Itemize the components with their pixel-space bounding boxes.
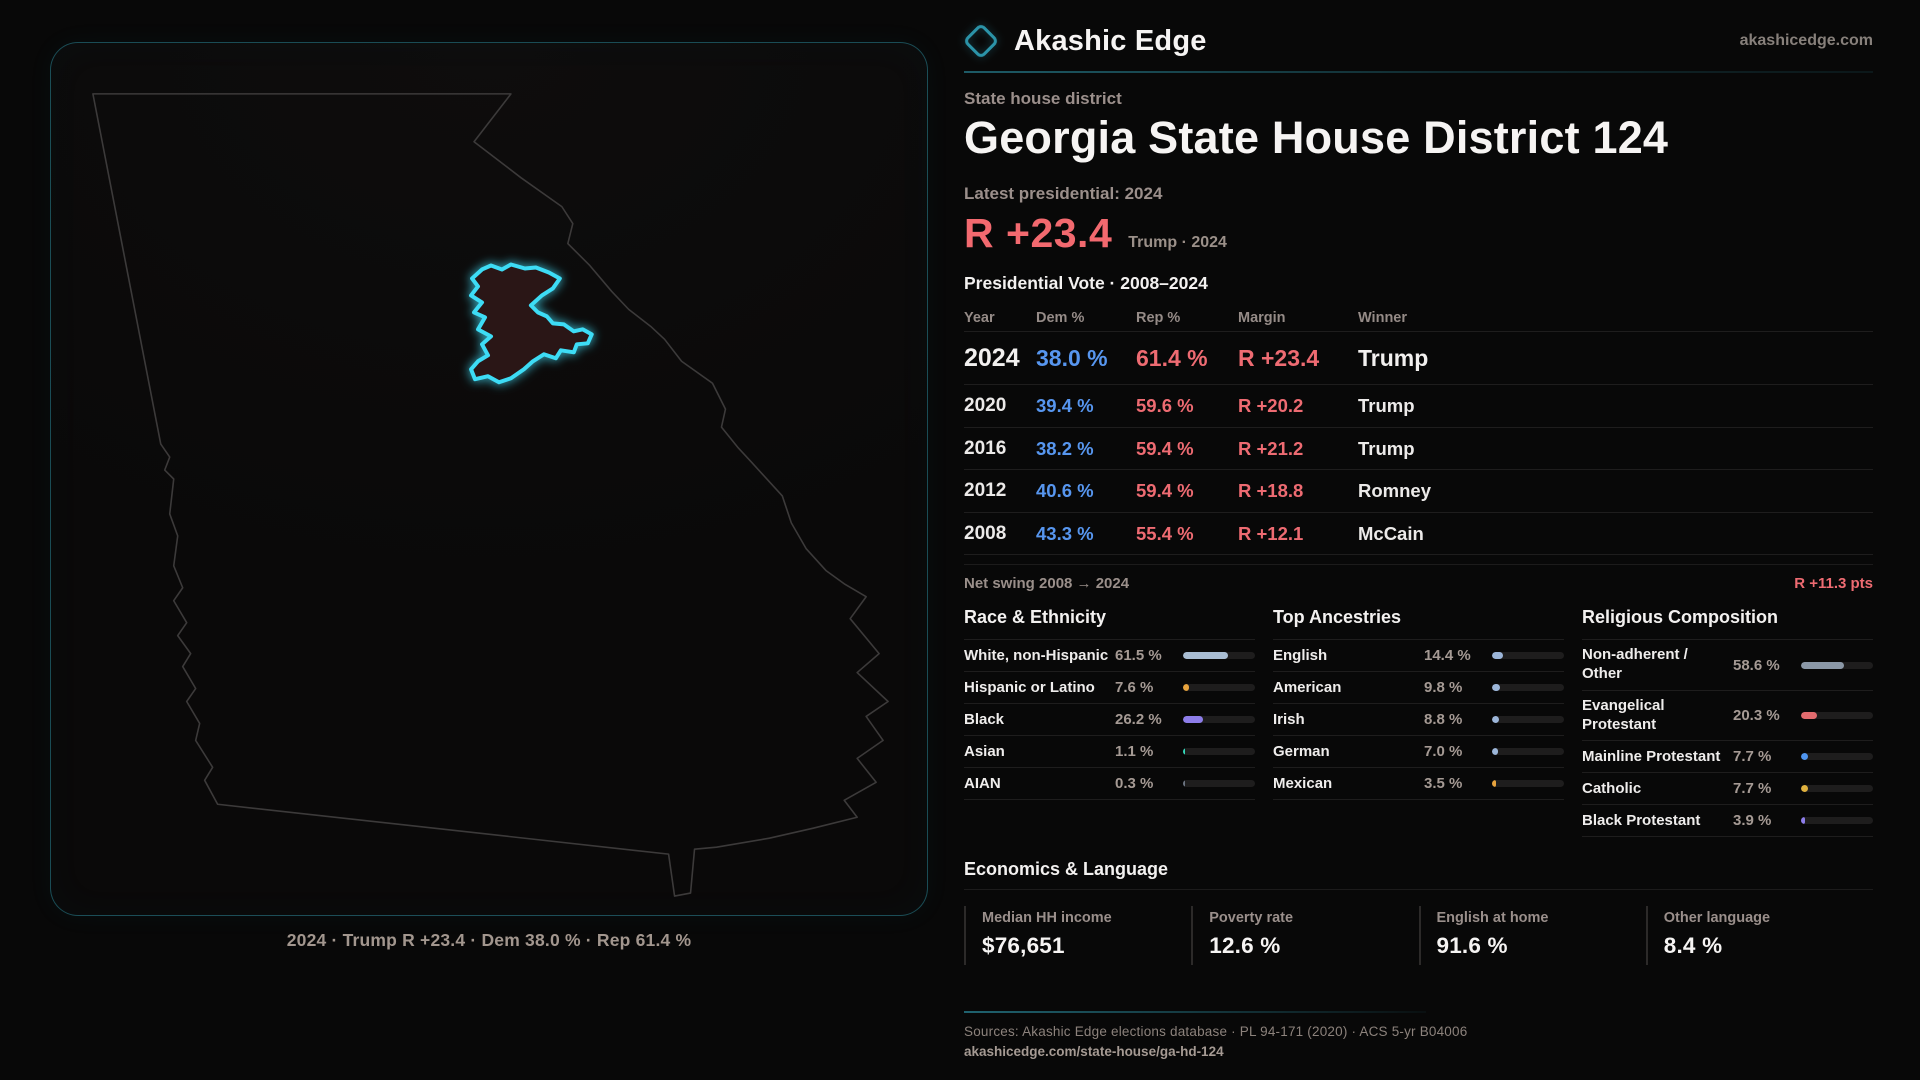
demo-bar: [1801, 662, 1873, 669]
demo-label: White, non-Hispanic: [964, 647, 1109, 666]
permalink[interactable]: akashicedge.com/state-house/ga-hd-124: [964, 1044, 1873, 1059]
demo-bar: [1183, 748, 1255, 755]
demo-label: Hispanic or Latino: [964, 679, 1109, 698]
georgia-map: [51, 43, 927, 915]
vote-rep-pct: 59.4 %: [1136, 480, 1238, 502]
demo-bar: [1801, 817, 1873, 824]
demo-label: AIAN: [964, 775, 1109, 794]
vote-dem-pct: 38.2 %: [1036, 438, 1136, 460]
demo-value: 58.6 %: [1733, 657, 1795, 674]
stat-label: English at home: [1437, 910, 1646, 926]
vote-dem-pct: 39.4 %: [1036, 395, 1136, 417]
vote-table-row: 202039.4 %59.6 %R +20.2Trump: [964, 385, 1873, 428]
stat-label: Median HH income: [982, 910, 1191, 926]
vote-margin: R +20.2: [1238, 395, 1358, 417]
demo-label: German: [1273, 743, 1418, 762]
demo-value: 1.1 %: [1115, 743, 1177, 760]
demo-rows: English14.4 %American9.8 %Irish8.8 %Germ…: [1273, 639, 1564, 800]
demo-row: Non-adherent / Other58.6 %: [1582, 640, 1873, 691]
demo-bar-fill: [1492, 780, 1496, 787]
stat-label: Poverty rate: [1209, 910, 1418, 926]
vote-table-header: Year Dem % Rep % Margin Winner: [964, 304, 1873, 332]
vote-table-row: 201638.2 %59.4 %R +21.2Trump: [964, 428, 1873, 471]
headline-margin-value: R +23.4: [964, 210, 1112, 257]
vote-rep-pct: 61.4 %: [1136, 345, 1238, 372]
vote-winner: Trump: [1358, 345, 1873, 372]
demo-row: Irish8.8 %: [1273, 704, 1564, 736]
demo-column-title: Top Ancestries: [1273, 607, 1564, 628]
stat-value: 12.6 %: [1209, 933, 1418, 959]
georgia-state-outline: [93, 94, 888, 896]
demo-rows: White, non-Hispanic61.5 %Hispanic or Lat…: [964, 639, 1255, 800]
sources-text: Sources: Akashic Edge elections database…: [964, 1024, 1873, 1039]
demo-bar-fill: [1183, 716, 1203, 723]
demo-bar: [1492, 716, 1564, 723]
vote-dem-pct: 40.6 %: [1036, 480, 1136, 502]
footer-divider: [964, 1011, 1426, 1013]
economics-title: Economics & Language: [964, 859, 1873, 880]
demo-column: Race & EthnicityWhite, non-Hispanic61.5 …: [964, 607, 1255, 837]
vote-margin: R +12.1: [1238, 523, 1358, 545]
demo-label: Catholic: [1582, 780, 1727, 799]
demo-value: 3.5 %: [1424, 775, 1486, 792]
demo-bar-fill: [1801, 817, 1805, 824]
demo-bar: [1183, 684, 1255, 691]
demo-row: Catholic7.7 %: [1582, 773, 1873, 805]
demo-row: AIAN0.3 %: [964, 768, 1255, 800]
demo-bar-fill: [1183, 780, 1185, 787]
latest-presidential-label: Latest presidential: 2024: [964, 184, 1873, 204]
demo-bar-fill: [1183, 748, 1185, 755]
demo-label: Mainline Protestant: [1582, 748, 1727, 767]
demo-row: Evangelical Protestant20.3 %: [1582, 691, 1873, 742]
net-swing-label: Net swing 2008 → 2024: [964, 575, 1129, 592]
col-dem: Dem %: [1036, 310, 1136, 326]
stat-value: $76,651: [982, 933, 1191, 959]
demographics-section: Race & EthnicityWhite, non-Hispanic61.5 …: [964, 607, 1873, 837]
demo-bar-fill: [1492, 716, 1499, 723]
demo-value: 9.8 %: [1424, 679, 1486, 696]
diamond-outline-icon: [963, 23, 1000, 60]
vote-year: 2012: [964, 480, 1036, 502]
demo-column-title: Religious Composition: [1582, 607, 1873, 628]
demo-bar-fill: [1801, 785, 1808, 792]
demo-bar: [1183, 716, 1255, 723]
headline-margin-note: Trump · 2024: [1128, 234, 1227, 252]
page-kicker: State house district: [964, 89, 1873, 109]
demo-row: English14.4 %: [1273, 640, 1564, 672]
col-winner: Winner: [1358, 310, 1873, 326]
demo-column-title: Race & Ethnicity: [964, 607, 1255, 628]
demo-bar-fill: [1801, 662, 1844, 669]
demo-bar: [1183, 780, 1255, 787]
col-rep: Rep %: [1136, 310, 1238, 326]
demo-label: Non-adherent / Other: [1582, 646, 1727, 684]
demo-rows: Non-adherent / Other58.6 %Evangelical Pr…: [1582, 639, 1873, 837]
vote-year: 2016: [964, 438, 1036, 460]
demo-value: 8.8 %: [1424, 711, 1486, 728]
vote-year: 2024: [964, 344, 1036, 373]
district-map-panel: [50, 42, 928, 916]
stat-value: 8.4 %: [1664, 933, 1873, 959]
stat-cell: Other language8.4 %: [1646, 906, 1873, 965]
demo-value: 3.9 %: [1733, 812, 1795, 829]
demo-row: Mainline Protestant7.7 %: [1582, 741, 1873, 773]
demo-row: Black Protestant3.9 %: [1582, 805, 1873, 837]
demo-label: Black Protestant: [1582, 812, 1727, 831]
demo-label: Evangelical Protestant: [1582, 697, 1727, 735]
district-shape-hd124: [471, 264, 592, 382]
demo-bar: [1492, 748, 1564, 755]
demo-row: Mexican3.5 %: [1273, 768, 1564, 800]
demo-bar-fill: [1183, 652, 1228, 659]
demo-label: Black: [964, 711, 1109, 730]
vote-table-row: 200843.3 %55.4 %R +12.1McCain: [964, 513, 1873, 556]
vote-year: 2008: [964, 523, 1036, 545]
demo-value: 0.3 %: [1115, 775, 1177, 792]
col-margin: Margin: [1238, 310, 1358, 326]
demo-bar: [1492, 652, 1564, 659]
vote-rep-pct: 59.4 %: [1136, 438, 1238, 460]
vote-winner: Romney: [1358, 480, 1873, 502]
demo-bar: [1183, 652, 1255, 659]
stat-label: Other language: [1664, 910, 1873, 926]
demo-value: 7.7 %: [1733, 748, 1795, 765]
vote-dem-pct: 38.0 %: [1036, 345, 1136, 372]
demo-bar-fill: [1183, 684, 1189, 691]
demo-value: 61.5 %: [1115, 647, 1177, 664]
demo-row: Asian1.1 %: [964, 736, 1255, 768]
net-swing-row: Net swing 2008 → 2024 R +11.3 pts: [964, 564, 1873, 592]
demo-label: English: [1273, 647, 1418, 666]
vote-year: 2020: [964, 395, 1036, 417]
vote-margin: R +18.8: [1238, 480, 1358, 502]
vote-winner: McCain: [1358, 523, 1873, 545]
headline-margin-row: R +23.4 Trump · 2024: [964, 210, 1873, 257]
demo-bar-fill: [1801, 712, 1817, 719]
demo-row: White, non-Hispanic61.5 %: [964, 640, 1255, 672]
brand-name: Akashic Edge: [1014, 25, 1207, 58]
demo-bar-fill: [1492, 652, 1503, 659]
demo-bar: [1492, 780, 1564, 787]
col-year: Year: [964, 310, 1036, 326]
map-caption: 2024 · Trump R +23.4 · Dem 38.0 % · Rep …: [50, 930, 928, 951]
demo-bar: [1801, 785, 1873, 792]
demo-bar-fill: [1492, 684, 1500, 691]
demo-label: American: [1273, 679, 1418, 698]
demo-value: 7.0 %: [1424, 743, 1486, 760]
brand-header: Akashic Edge akashicedge.com: [964, 24, 1873, 58]
vote-rep-pct: 55.4 %: [1136, 523, 1238, 545]
demo-column: Top AncestriesEnglish14.4 %American9.8 %…: [1273, 607, 1564, 837]
brand-domain-link[interactable]: akashicedge.com: [1740, 32, 1873, 50]
vote-margin: R +23.4: [1238, 345, 1358, 372]
demo-label: Asian: [964, 743, 1109, 762]
vote-winner: Trump: [1358, 395, 1873, 417]
demo-bar: [1801, 712, 1873, 719]
demo-value: 14.4 %: [1424, 647, 1486, 664]
demo-bar-fill: [1801, 753, 1808, 760]
vote-winner: Trump: [1358, 438, 1873, 460]
demo-bar: [1801, 753, 1873, 760]
demo-value: 20.3 %: [1733, 707, 1795, 724]
demo-row: American9.8 %: [1273, 672, 1564, 704]
page-title: Georgia State House District 124: [964, 113, 1873, 163]
demo-value: 7.6 %: [1115, 679, 1177, 696]
demo-label: Irish: [1273, 711, 1418, 730]
vote-table-title: Presidential Vote · 2008–2024: [964, 273, 1873, 294]
vote-margin: R +21.2: [1238, 438, 1358, 460]
stat-cell: Poverty rate12.6 %: [1191, 906, 1418, 965]
vote-dem-pct: 43.3 %: [1036, 523, 1136, 545]
demo-column: Religious CompositionNon-adherent / Othe…: [1582, 607, 1873, 837]
header-divider: [964, 71, 1873, 73]
demo-value: 7.7 %: [1733, 780, 1795, 797]
demo-value: 26.2 %: [1115, 711, 1177, 728]
vote-table-body: 202438.0 %61.4 %R +23.4Trump202039.4 %59…: [964, 332, 1873, 555]
demo-row: Black26.2 %: [964, 704, 1255, 736]
vote-table-row: 201240.6 %59.4 %R +18.8Romney: [964, 470, 1873, 513]
economics-stats: Median HH income$76,651Poverty rate12.6 …: [964, 906, 1873, 965]
stat-cell: English at home91.6 %: [1419, 906, 1646, 965]
stats-panel: Akashic Edge akashicedge.com State house…: [964, 24, 1873, 1059]
stat-cell: Median HH income$76,651: [964, 906, 1191, 965]
demo-bar: [1492, 684, 1564, 691]
demo-row: Hispanic or Latino7.6 %: [964, 672, 1255, 704]
stat-value: 91.6 %: [1437, 933, 1646, 959]
demo-row: German7.0 %: [1273, 736, 1564, 768]
economics-divider: [964, 889, 1873, 890]
vote-table-row: 202438.0 %61.4 %R +23.4Trump: [964, 332, 1873, 385]
vote-rep-pct: 59.6 %: [1136, 395, 1238, 417]
presidential-vote-table: Year Dem % Rep % Margin Winner 202438.0 …: [964, 304, 1873, 555]
net-swing-value: R +11.3 pts: [1794, 575, 1873, 592]
demo-bar-fill: [1492, 748, 1498, 755]
demo-label: Mexican: [1273, 775, 1418, 794]
